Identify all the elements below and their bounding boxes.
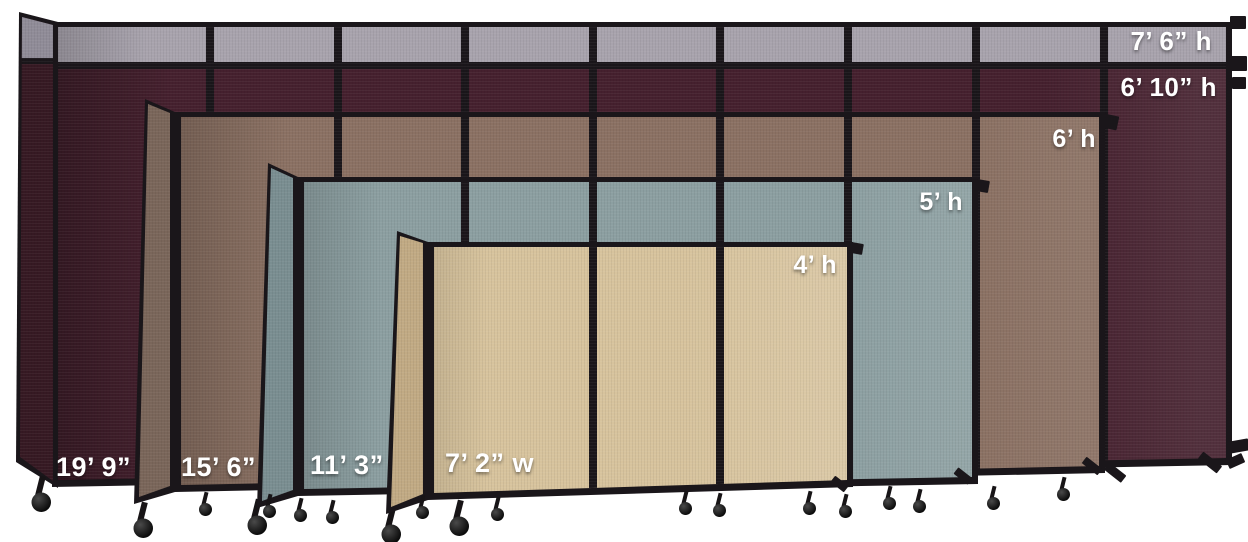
caster-wheel-icon bbox=[838, 494, 852, 520]
return-fabric-sand bbox=[386, 231, 428, 514]
caster-wheel-icon bbox=[712, 493, 726, 519]
caster-wheel-icon bbox=[415, 495, 429, 521]
caster-wheel-icon bbox=[678, 491, 692, 517]
caster-wheel-icon bbox=[448, 500, 469, 539]
partition-size-comparison-image: 7’ 6” h 6’ 10” h 19’ 9” w 6’ h 15’ 6” w bbox=[0, 0, 1248, 542]
width-label-7ft2: 7’ 2” w bbox=[445, 448, 534, 479]
caster-wheel-icon bbox=[802, 491, 816, 517]
caster-wheel-icon bbox=[490, 497, 504, 523]
height-label-4ft: 4’ h bbox=[727, 251, 837, 280]
panel-divider bbox=[589, 242, 597, 500]
panel-divider bbox=[716, 242, 724, 500]
wall-bracket-icon bbox=[850, 242, 864, 255]
partition-wall-sand: 4’ h 7’ 2” w bbox=[0, 0, 1248, 542]
return-panel-sand bbox=[386, 231, 428, 514]
